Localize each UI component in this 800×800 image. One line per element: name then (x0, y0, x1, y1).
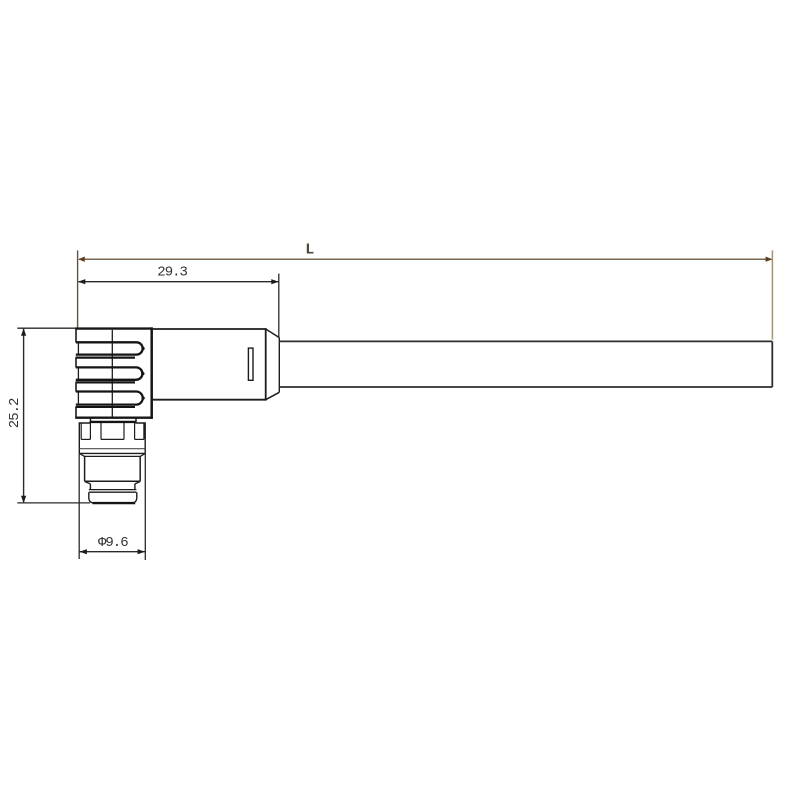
svg-text:25.2: 25.2 (7, 398, 23, 428)
svg-text:Φ9.6: Φ9.6 (98, 535, 128, 551)
svg-text:29.3: 29.3 (157, 264, 187, 280)
svg-text:L: L (305, 241, 314, 258)
